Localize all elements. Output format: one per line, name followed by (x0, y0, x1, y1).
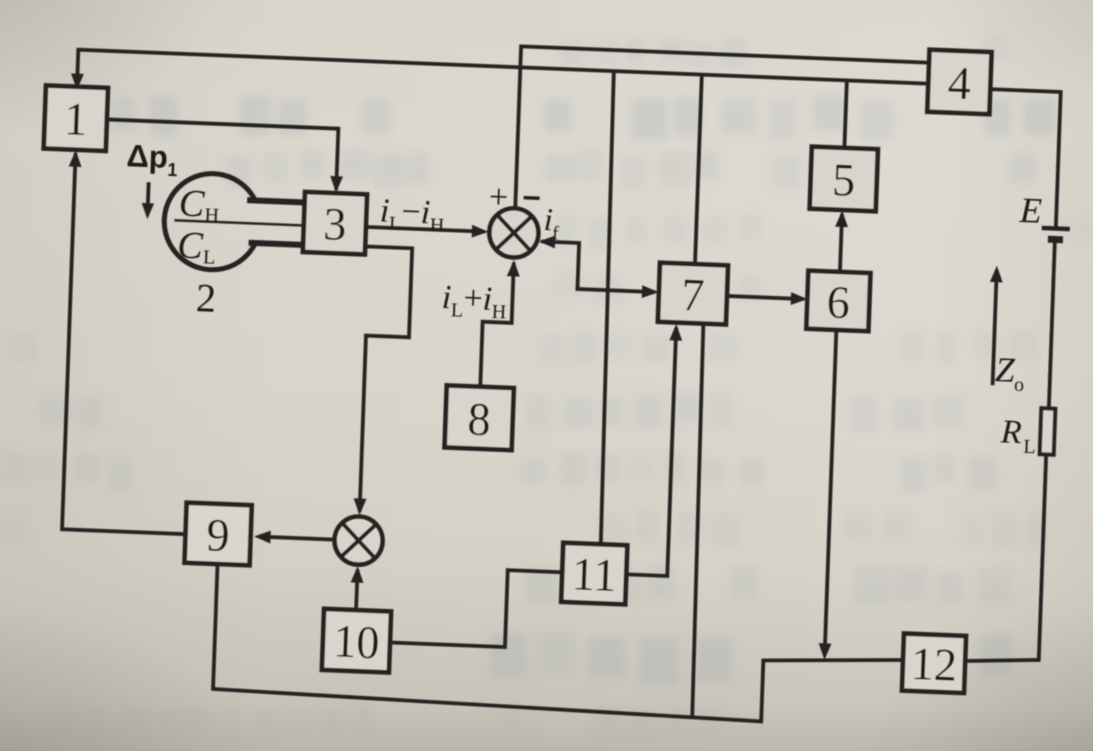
svg-text:iL−iH: iL−iH (379, 193, 445, 238)
svg-text:if: if (543, 201, 560, 245)
svg-text:4: 4 (947, 57, 972, 109)
svg-text:E: E (1018, 190, 1042, 231)
svg-text:11: 11 (571, 548, 617, 601)
svg-text:+: + (488, 179, 509, 217)
svg-text:12: 12 (910, 638, 958, 691)
svg-text:H: H (204, 204, 219, 227)
svg-text:iL+iH: iL+iH (441, 279, 507, 324)
svg-text:L: L (1023, 436, 1036, 458)
svg-text:C: C (178, 182, 205, 225)
svg-text:7: 7 (680, 269, 705, 321)
svg-text:2: 2 (195, 275, 217, 321)
svg-text:3: 3 (323, 198, 348, 250)
svg-text:Δp1: Δp1 (126, 138, 179, 180)
svg-text:Zo: Zo (994, 350, 1025, 396)
svg-text:1: 1 (63, 93, 88, 145)
svg-text:5: 5 (831, 154, 856, 206)
svg-text:L: L (203, 246, 216, 268)
svg-text:C: C (177, 224, 204, 267)
svg-text:10: 10 (333, 615, 381, 668)
svg-text:9: 9 (206, 509, 231, 561)
svg-text:6: 6 (826, 276, 851, 328)
svg-text:R: R (999, 414, 1022, 452)
svg-text:8: 8 (467, 393, 492, 445)
